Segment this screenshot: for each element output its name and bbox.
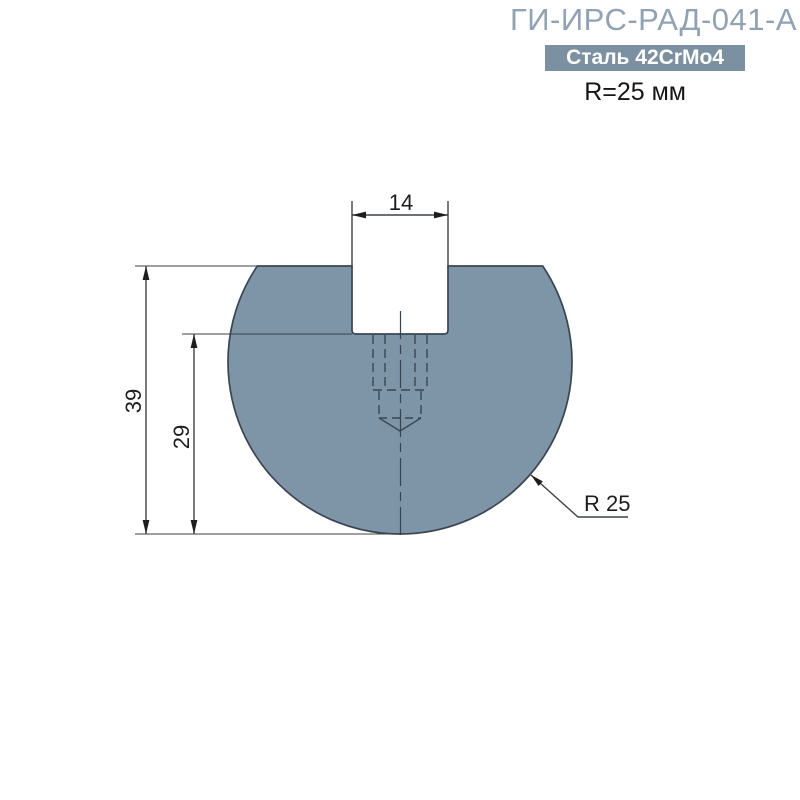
arrowhead-right [434,212,448,219]
dimension-slot-width: 14 [352,190,448,218]
arrowhead-bottom [143,520,150,534]
datasheet-page: ГИ-ИРС-РАД-041-А Сталь 42CrMo4 R=25 мм [0,0,800,800]
dimension-body-height: 29 [169,334,197,534]
dim-value-radius: R 25 [584,491,630,516]
dim-value-total-height: 39 [121,389,146,413]
arrowhead-left [352,212,366,219]
arrowhead-top [191,334,198,348]
arrowhead-bottom [191,520,198,534]
technical-drawing: 14 39 29 R 25 [0,0,800,800]
dim-value-body-height: 29 [169,425,194,449]
radius-leader: R 25 [531,475,630,517]
arrowhead-top [143,266,150,280]
dimension-total-height: 39 [121,266,149,534]
dim-value-slot-width: 14 [389,190,413,215]
